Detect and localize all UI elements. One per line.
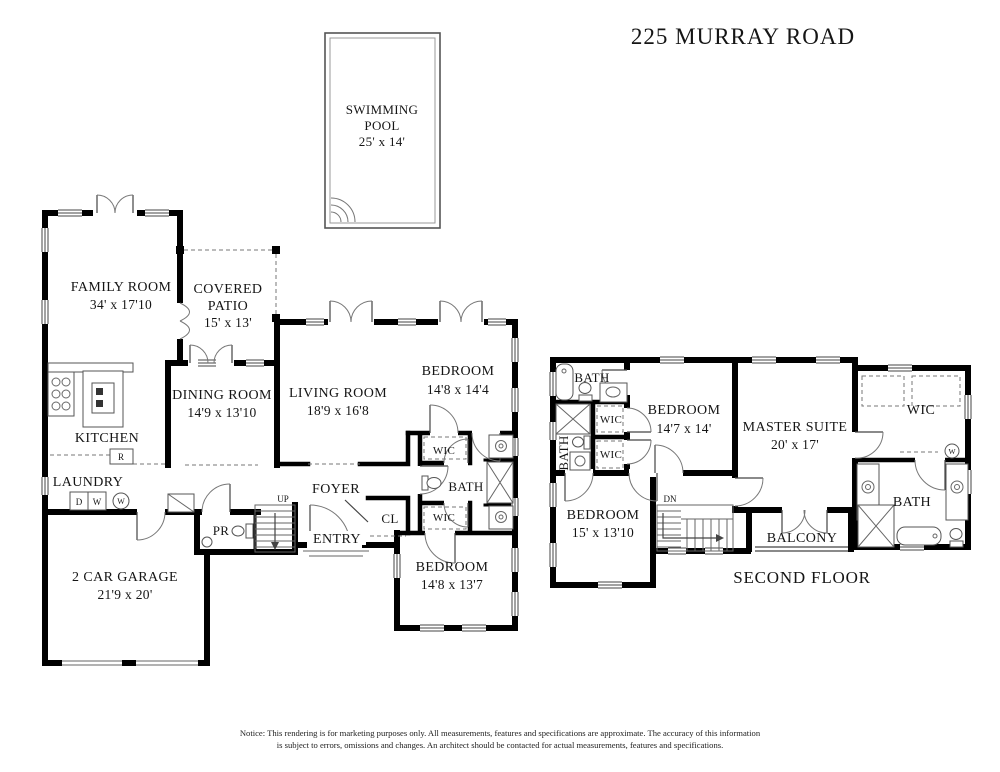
room-label-family-room: FAMILY ROOM — [71, 280, 172, 295]
page-title: 225 MURRAY ROAD — [631, 24, 855, 49]
room-dims-garage: 21'9 x 20' — [97, 587, 152, 602]
floor-plan-page: SWIMMING POOL 25' x 14' 225 MURRAY ROAD — [0, 0, 1000, 772]
room-label-foyer: FOYER — [312, 482, 360, 497]
vanity-sink-icon — [570, 452, 590, 470]
room-label-living-room: LIVING ROOM — [289, 386, 387, 401]
swimming-pool: SWIMMING POOL 25' x 14' — [325, 33, 440, 228]
room-label-balcony: BALCONY — [767, 531, 837, 546]
room-label-powder-room: PR — [213, 523, 230, 538]
room-dims-bedroom-rear: 14'8 x 14'4 — [427, 382, 489, 397]
vanity-sink-icon — [946, 464, 968, 520]
room-label-bedroom-front: BEDROOM — [416, 560, 489, 575]
shower-icon — [858, 505, 894, 547]
room-dims-living-room: 18'9 x 16'8 — [307, 403, 369, 418]
sink-icon — [202, 537, 212, 547]
toilet-icon — [579, 383, 592, 402]
bathtub-icon — [897, 527, 941, 545]
room-dims-bedroom-rear: 14'7 x 14' — [656, 421, 711, 436]
washer-label: W — [948, 447, 956, 456]
room-label-dining-room: DINING ROOM — [172, 388, 272, 403]
room-label-closet: CL — [381, 511, 398, 526]
notice-line-1: Notice: This rendering is for marketing … — [240, 728, 761, 738]
first-floor-plan: R D W W — [41, 195, 519, 667]
room-label-master-wic: WIC — [907, 403, 935, 418]
stove-icon — [92, 383, 114, 413]
room-label-bedroom-front: BEDROOM — [567, 508, 640, 523]
floor-plan-canvas: SWIMMING POOL 25' x 14' 225 MURRAY ROAD — [0, 0, 1000, 772]
stairs-label-up: UP — [277, 494, 289, 504]
toilet-icon — [950, 529, 963, 548]
toilet-icon — [573, 436, 591, 449]
room-label-entry: ENTRY — [313, 532, 361, 547]
room-dims-covered-patio: 15' x 13' — [204, 315, 252, 330]
shower-icon — [556, 404, 590, 434]
room-dims-bedroom-front: 14'8 x 13'7 — [421, 577, 483, 592]
second-floor-caption: SECOND FLOOR — [733, 568, 871, 587]
pool-steps-icon — [331, 198, 355, 222]
shower-icon — [487, 462, 513, 503]
dryer-label: D — [76, 497, 83, 507]
laundry-appliances: D W W — [70, 492, 129, 510]
room-label-wic-bottom: WIC — [433, 512, 455, 524]
disclaimer-notice: Notice: This rendering is for marketing … — [240, 728, 761, 750]
room-dims-bedroom-front: 15' x 13'10 — [572, 525, 634, 540]
first-floor-doors — [97, 195, 500, 563]
room-label-wic-2: WIC — [600, 449, 622, 461]
room-label-bath-top: BATH — [574, 370, 609, 385]
vanity-sink-icon — [489, 506, 513, 529]
second-floor-stairs — [657, 505, 733, 551]
room-label-covered-patio: PATIO — [208, 299, 248, 314]
toilet-icon — [246, 524, 253, 538]
notice-line-2: is subject to errors, omissions and chan… — [277, 740, 724, 750]
room-label-master-suite: MASTER SUITE — [743, 420, 848, 435]
pool-dims: 25' x 14' — [359, 134, 405, 149]
room-label-master-bath: BATH — [893, 495, 931, 510]
pool-label: SWIMMING — [346, 102, 418, 117]
bathtub-icon — [556, 364, 573, 400]
room-label-bath: BATH — [448, 479, 483, 494]
room-label-garage: 2 CAR GARAGE — [72, 570, 178, 585]
refrigerator-label: R — [118, 452, 124, 462]
stacked-washer-icon: W — [945, 444, 959, 458]
pool-label: POOL — [364, 118, 399, 133]
room-label-bath-left: BATH — [556, 435, 571, 470]
second-floor-plan: W BATH BATH WIC WIC BEDROOM 14'7 x 14' M… — [549, 356, 972, 589]
room-label-bedroom-rear: BEDROOM — [648, 403, 721, 418]
room-dims-dining-room: 14'9 x 13'10 — [187, 405, 256, 420]
vanity-sink-icon — [600, 383, 627, 402]
room-label-wic-top: WIC — [433, 445, 455, 457]
room-label-covered-patio: COVERED — [194, 282, 263, 297]
toilet-icon — [422, 476, 441, 490]
room-dims-master-suite: 20' x 17' — [771, 437, 819, 452]
room-label-kitchen: KITCHEN — [75, 431, 139, 446]
stairs-label-dn: DN — [664, 494, 677, 504]
water-heater-label: W — [117, 497, 125, 506]
room-label-wic-1: WIC — [600, 414, 622, 426]
room-dims-family-room: 34' x 17'10 — [90, 297, 152, 312]
room-label-laundry: LAUNDRY — [53, 475, 123, 490]
vanity-sink-icon — [489, 435, 513, 458]
mud-closet — [168, 494, 194, 512]
washer-label: W — [93, 497, 102, 507]
kitchen-counter: R — [48, 363, 133, 464]
room-label-bedroom-rear: BEDROOM — [422, 364, 495, 379]
